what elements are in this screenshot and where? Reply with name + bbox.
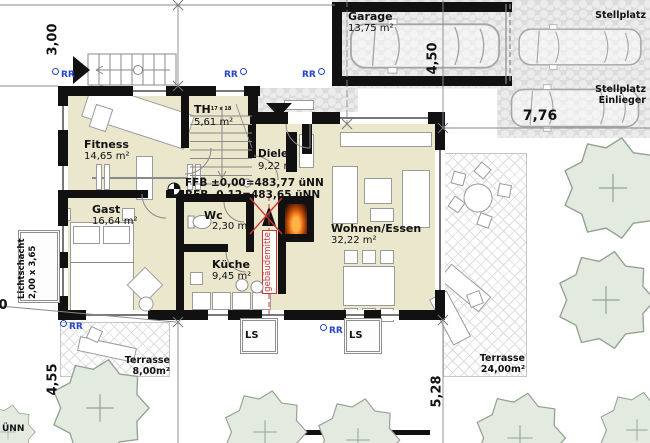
bed-blanket-line: [70, 262, 134, 263]
wall-segment: [248, 124, 256, 158]
label-text: RR: [69, 322, 83, 332]
room-name: Fitness: [84, 138, 130, 151]
room-label-th: TH17 x 18 5,61 m²: [194, 98, 233, 129]
label-text: RR: [302, 70, 316, 80]
floor-plan: Fitness 14,65 m² TH17 x 18 5,61 m² Diele…: [0, 0, 650, 443]
building-center-label: gebäudemitte: [263, 227, 275, 297]
barbell-plate: [96, 164, 102, 190]
window: [381, 310, 399, 320]
dim-terrace-right-depth: 5,28: [430, 372, 445, 412]
label-terrasse-left: Terrasse 8,00m²: [100, 355, 170, 378]
label-text: RR: [61, 70, 75, 80]
room-label-diele: Diele 9,22 m²: [258, 148, 297, 173]
unn-partial-label: ÜNN: [2, 424, 24, 435]
window: [208, 310, 228, 320]
label-text: Terrasse: [100, 355, 170, 366]
ffb-level: FFB ±0,00=483,77 üNN: [185, 177, 324, 189]
kitchen-counter: [192, 292, 211, 310]
dining-chair: [362, 250, 376, 264]
dim-text: 3,00: [46, 23, 61, 55]
window: [340, 112, 428, 124]
room-name: Garage: [348, 10, 394, 23]
kitchen-counter: [232, 292, 251, 310]
rain-pipe-marker: RR: [318, 324, 343, 336]
dining-chair: [344, 250, 358, 264]
window: [216, 86, 244, 96]
furniture-side-table: [370, 208, 394, 222]
pipe-circle-icon: [60, 320, 67, 327]
wall-segment: [181, 96, 189, 148]
bed-pillow: [73, 226, 100, 244]
lichtschacht-label: Lichtschacht 2,00 x 3,65: [17, 229, 41, 299]
furniture-sideboard: [340, 132, 432, 147]
room-label-kueche: Küche 9,45 m²: [212, 258, 251, 283]
light-shaft-label: LS: [245, 330, 259, 342]
room-name: Diele: [258, 148, 297, 161]
label-stellplatz-einlieger: Stellplatz Einlieger: [560, 84, 646, 107]
stair-direction-arrow: [73, 56, 90, 84]
window: [86, 310, 148, 320]
room-label-wohnen: Wohnen/Essen 32,22 m²: [331, 222, 421, 247]
pipe-circle-icon: [52, 68, 59, 75]
garage-wall: [332, 76, 512, 86]
garage-wall: [332, 2, 342, 86]
rfb-level: RFB -0,12=483,65 üNN: [185, 189, 324, 201]
rain-pipe-marker: RR: [302, 68, 327, 80]
label-text: LS: [349, 330, 363, 341]
dim-partial-left: 0: [0, 298, 10, 313]
label-text: Terrasse: [455, 353, 525, 364]
label-text: LS: [245, 330, 259, 341]
window: [58, 166, 68, 190]
room-area: 5,61 m²: [194, 117, 233, 129]
furniture-dining-table: [343, 266, 395, 306]
terrace-chair: [497, 183, 512, 198]
label-terrasse-right: Terrasse 24,00m²: [455, 353, 525, 376]
furniture-sofa: [332, 166, 358, 224]
room-area-wc: 2,30 m²: [212, 214, 251, 233]
room-area: 9,22 m²: [258, 161, 297, 173]
room-area: 9,45 m²: [212, 271, 251, 283]
wall-segment: [302, 124, 312, 154]
room-area: 32,22 m²: [331, 235, 421, 247]
pipe-circle-icon: [320, 324, 327, 331]
label-text: gebäudemitte: [263, 232, 273, 292]
room-name: Gast: [92, 203, 138, 216]
light-shaft-label: LS: [349, 330, 363, 342]
dim-parking-width: 7,76: [510, 108, 570, 124]
dim-text: 0: [0, 298, 8, 313]
label-text: RR: [329, 326, 343, 336]
furniture-coffee-table: [364, 178, 392, 204]
room-area: 14,65 m²: [84, 151, 130, 163]
dim-setback-top: 3,00: [46, 20, 61, 60]
dim-garage-depth: 4,50: [426, 39, 441, 79]
label-text: Stellplatz: [595, 10, 646, 21]
room-label-fitness: Fitness 14,65 m²: [84, 138, 130, 163]
room-name: Wohnen/Essen: [331, 222, 421, 235]
label-text: 24,00m²: [455, 364, 525, 375]
room-area: 16,64 m²: [92, 216, 138, 228]
room-label-gast: Gast 16,64 m²: [92, 203, 138, 228]
label-text: ÜNN: [2, 424, 24, 434]
fireplace-icon: [283, 202, 309, 236]
barbell-plate: [104, 164, 110, 190]
wall-segment: [248, 96, 258, 116]
room-name: TH: [194, 103, 211, 116]
pipe-circle-icon: [318, 68, 325, 75]
kitchen-appliance: [190, 272, 203, 285]
entry-step: [284, 100, 314, 110]
wall-segment: [176, 244, 228, 252]
window: [58, 106, 68, 130]
rain-pipe-marker: RR: [58, 320, 83, 332]
entry-door-opening: [288, 112, 312, 124]
dim-terrace-left-depth: 4,55: [46, 360, 61, 400]
label-text: Lichtschacht: [17, 229, 28, 299]
label-text: Stellplatz: [560, 84, 646, 95]
property-line: [250, 430, 430, 435]
window: [435, 150, 445, 290]
level-annotation: FFB ±0,00=483,77 üNN RFB -0,12=483,65 üN…: [185, 177, 324, 202]
dim-text: 4,50: [426, 42, 441, 74]
bed-pillow: [103, 226, 130, 244]
wall-segment: [62, 190, 148, 198]
stair-steps-note: 17 x 18: [211, 106, 232, 112]
kitchen-counter: [212, 292, 231, 310]
pipe-circle-icon: [240, 68, 247, 75]
rain-pipe-marker: RR: [224, 68, 249, 80]
dim-text: 4,55: [46, 363, 61, 395]
room-area: 13,75 m²: [348, 23, 394, 35]
label-text: RR: [224, 70, 238, 80]
rain-pipe-marker: RR: [50, 68, 75, 80]
room-area: 2,30 m²: [212, 221, 251, 232]
label-stellplatz: Stellplatz: [560, 10, 646, 21]
dining-chair: [380, 250, 394, 264]
exterior-stair: [88, 54, 176, 85]
label-text: Einlieger: [560, 95, 646, 106]
dim-text: 7,76: [523, 108, 558, 124]
label-text: 2,00 x 3,65: [28, 229, 39, 299]
label-text: 8,00m²: [100, 366, 170, 377]
dim-text: 5,28: [430, 375, 445, 407]
furniture-sofa: [402, 170, 430, 228]
room-name: Küche: [212, 258, 251, 271]
window: [133, 86, 166, 96]
wall-segment: [278, 242, 286, 294]
room-label-garage: Garage 13,75 m²: [348, 10, 394, 35]
